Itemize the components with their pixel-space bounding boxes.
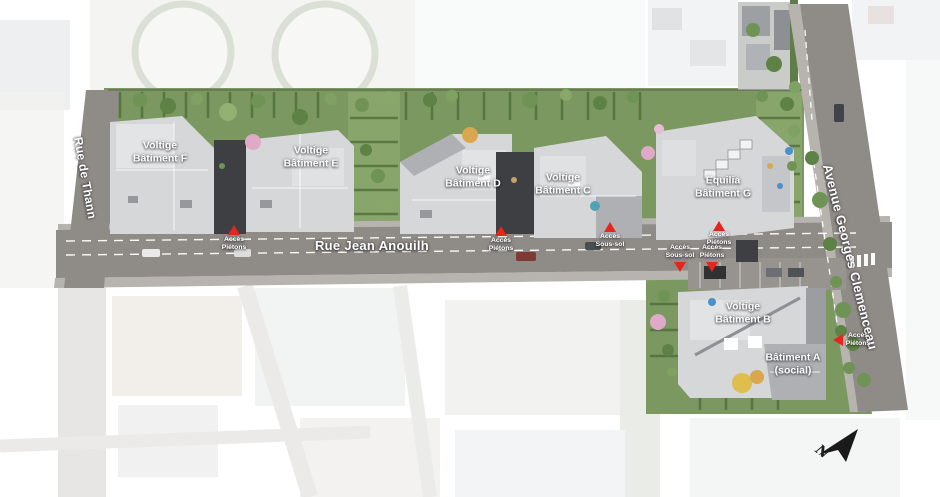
building-e-footprint (246, 130, 354, 232)
courtyard-d-c (496, 152, 534, 234)
existing-houses-top-right (738, 0, 798, 90)
building-f-footprint (110, 116, 214, 234)
courtyard-f-e (214, 140, 246, 234)
courtyard-planter (219, 163, 225, 169)
site-plan-map (0, 0, 940, 497)
site-plan: Voltige Bâtiment F Voltige Bâtiment E Vo… (0, 0, 940, 497)
building-a-footprint (764, 344, 826, 400)
courtyard-planter (511, 177, 517, 183)
